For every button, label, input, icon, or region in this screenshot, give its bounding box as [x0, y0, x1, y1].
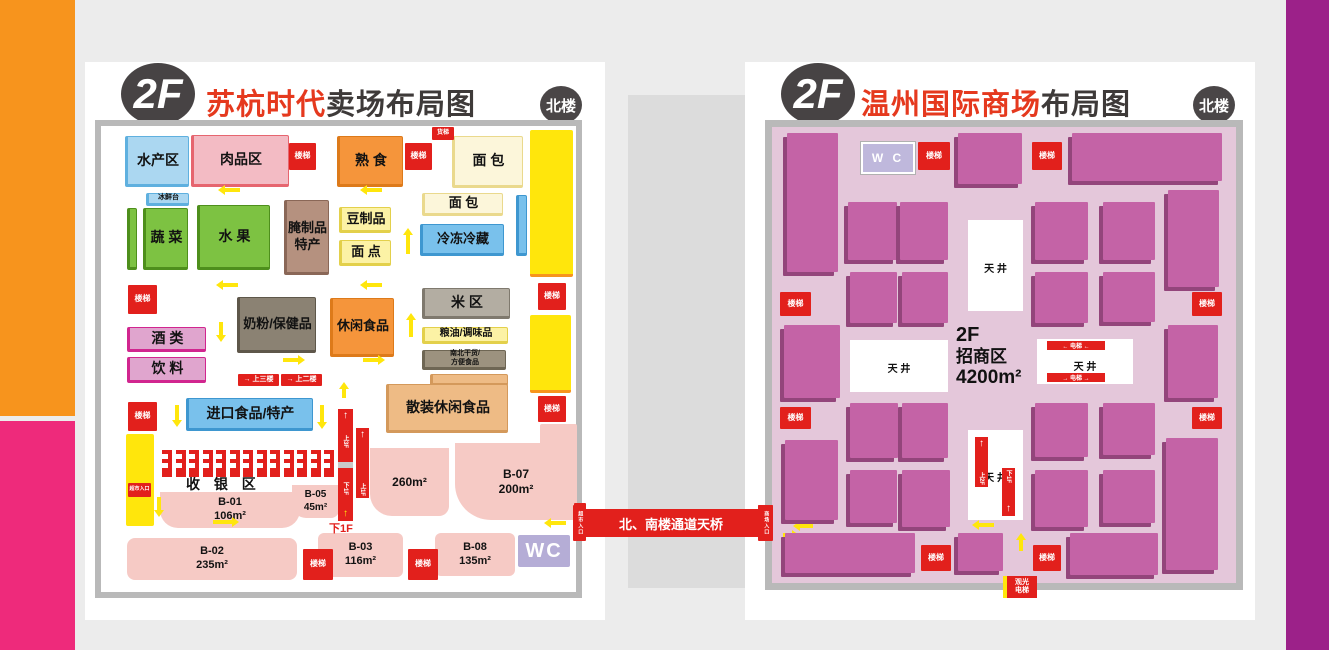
stairs-badge: 楼梯: [303, 549, 333, 580]
atrium-label: 天 井: [1037, 358, 1133, 373]
escalator-main: ↑上3F下1F↑: [338, 409, 353, 521]
stairs-badge: 楼梯: [128, 285, 157, 314]
flow-arrow-part: [339, 382, 349, 389]
shop-block: [1103, 403, 1155, 455]
flow-arrow-icon: [544, 518, 566, 528]
zone-dry-goods: 南北干货/ 方便食品: [422, 350, 506, 370]
flow-arrow-icon: [363, 355, 385, 365]
shop-block: [1035, 272, 1088, 323]
shop-block: [1103, 272, 1155, 322]
elevator-badge: → 电梯 →: [1047, 373, 1105, 382]
bridge-right-tab-label: 商场入口: [763, 511, 769, 535]
shop-block: [785, 440, 838, 520]
right-title-red: 温州国际商场: [861, 89, 1041, 121]
checkout-register-icon: [284, 450, 294, 477]
flow-arrow-icon: [1016, 533, 1026, 551]
checkout-register-icon: [176, 450, 186, 477]
flow-arrow-part: [544, 518, 551, 528]
flow-arrow-part: [216, 335, 226, 342]
up-2f-badge: → 上二楼: [281, 374, 322, 386]
left-floor-circle: 2F: [121, 63, 195, 125]
flow-arrow-icon: [360, 185, 382, 195]
escalator-direction-label: 下1F: [341, 482, 350, 495]
left-title-red: 苏杭时代: [206, 89, 326, 121]
shop-block: [787, 133, 838, 272]
escalator-strip: 下1F↑: [1002, 468, 1015, 516]
down-1f-label: 下1F: [329, 520, 353, 536]
shop-block: [1035, 202, 1088, 260]
zone-frozen: 冷冻冷藏: [420, 224, 504, 256]
escalator-side: ↑上1F: [356, 428, 369, 498]
stairs-badge: 楼梯: [780, 292, 811, 316]
left-north-badge: 北楼: [540, 86, 582, 124]
flow-arrow-part: [1019, 540, 1022, 551]
elevator-badge: ← 电梯 ←: [1047, 341, 1105, 350]
flow-arrow-part: [979, 523, 994, 526]
leasing-name: 招商区: [956, 347, 1022, 367]
flow-arrow-icon: [218, 185, 240, 195]
zone-grain-oil: 粮油/调味品: [422, 327, 508, 344]
flow-arrow-part: [154, 510, 164, 517]
stairs-badge: 楼梯: [128, 402, 157, 431]
shop-block: [850, 470, 897, 523]
flow-arrow-icon: [283, 355, 305, 365]
up-3f-badge: → 上三楼: [238, 374, 279, 386]
shop-block: [1035, 403, 1088, 457]
flow-arrow-part: [172, 420, 182, 427]
atrium-top: 天 井: [968, 220, 1023, 311]
flow-arrow-part: [219, 322, 222, 335]
flow-arrow-icon: [972, 520, 994, 530]
decor-orange-bar: [0, 0, 75, 416]
atrium-elevators: 天 井← 电梯 ←→ 电梯 →: [1037, 339, 1133, 384]
escalator-arrow-icon: ↑: [360, 430, 365, 440]
bridge-right-tab: 商场入口: [758, 505, 773, 541]
right-north-badge: 北楼: [1193, 86, 1235, 124]
stairs-badge: 楼梯: [538, 283, 566, 310]
zone-bread-2: 面 包: [422, 193, 503, 216]
checkout-register-icon: [189, 450, 199, 477]
shop-block: [902, 470, 950, 527]
checkout-register-icon: [230, 450, 240, 477]
zone-drinks: 饮 料: [127, 357, 206, 383]
checkout-register-icon: [162, 450, 172, 477]
zone-rice: 米 区: [422, 288, 510, 319]
flow-arrow-part: [342, 389, 345, 398]
checkout-register-icon: [324, 450, 334, 477]
flow-arrow-icon: [213, 517, 239, 527]
flow-arrow-icon: [403, 228, 413, 254]
flow-arrow-part: [225, 188, 240, 191]
zone-wc: WC: [518, 535, 570, 567]
checkout-register-icon: [270, 450, 280, 477]
atrium-left: 天 井: [850, 340, 948, 392]
stairs-badge: 楼梯: [918, 142, 950, 170]
left-floor-label: 2F: [133, 70, 182, 118]
flow-arrow-part: [360, 185, 367, 195]
right-floor-circle: 2F: [781, 63, 855, 125]
zone-ice-counter: 冰鲜台: [146, 193, 189, 206]
flow-arrow-part: [800, 524, 813, 527]
escalator-direction-label: 上3F: [341, 435, 350, 448]
escalator-direction-label: 上1F: [358, 483, 367, 496]
checkout-register-icon: [243, 450, 253, 477]
shop-block: [848, 202, 897, 260]
shop-block: [902, 272, 948, 323]
bridge-banner: 北、南楼通道天桥: [576, 509, 766, 537]
decor-purple-bar: [1286, 0, 1329, 650]
flow-arrow-icon: [406, 313, 416, 337]
escalator-arrow-icon: ↑: [979, 439, 984, 449]
flow-arrow-part: [216, 280, 223, 290]
stairs-badge: 楼梯: [405, 143, 432, 170]
flow-arrow-part: [320, 405, 323, 422]
checkout-register-icon: [297, 450, 307, 477]
green-strip: [127, 208, 137, 270]
bridge-left-tab-label: 超市入口: [577, 511, 583, 535]
escalator-direction-label: 上2F: [977, 472, 986, 485]
flow-arrow-part: [317, 422, 327, 429]
zone-wine: 酒 类: [127, 327, 206, 352]
stairs-badge: 楼梯: [408, 549, 438, 580]
flow-arrow-icon: [360, 280, 382, 290]
zone-vegetables: 蔬 菜: [143, 208, 188, 270]
escalator-arrow-icon: ↑: [1006, 504, 1011, 514]
blue-strip: [516, 195, 527, 256]
flow-arrow-part: [175, 405, 178, 420]
stairs-badge: 楼梯: [921, 545, 951, 571]
escalator-direction-label: 下1F: [1004, 470, 1013, 483]
cashier-area-label: 收 银 区: [186, 474, 261, 494]
leasing-size: 4200m²: [956, 367, 1022, 389]
shop-block: [958, 133, 1022, 184]
flow-arrow-icon: [339, 382, 349, 398]
poster-stage: 2F 苏杭时代卖场布局图 北楼 2F 温州国际商场布局图 北楼 2F 招商区 4…: [0, 0, 1329, 650]
right-floor-label: 2F: [793, 70, 842, 118]
bridge-label: 北、南楼通道天桥: [619, 514, 723, 533]
flow-arrow-icon: [154, 497, 164, 517]
atrium-label: 天 井: [850, 360, 948, 375]
stairs-badge: 楼梯: [1192, 407, 1222, 429]
zone-meat: 肉品区: [191, 135, 289, 187]
shop-block: [1070, 533, 1158, 575]
shop-block: [958, 533, 1003, 571]
zone-260: 260m²: [370, 448, 449, 516]
shop-block: [1166, 438, 1218, 570]
flow-arrow-part: [213, 520, 232, 523]
right-title-dark: 布局图: [1041, 89, 1131, 121]
leasing-floor: 2F: [956, 324, 1022, 347]
yellow-block: [126, 434, 154, 526]
stairs-badge: 楼梯: [1032, 142, 1062, 170]
shop-block: [1103, 470, 1155, 523]
flow-arrow-icon: [216, 322, 226, 342]
shop-block: [785, 533, 915, 573]
escalator-gap: [338, 462, 353, 468]
shop-block: [902, 403, 948, 458]
stairs-badge: 楼梯: [1192, 292, 1222, 316]
stairs-badge: 楼梯: [780, 407, 811, 429]
shop-block: [1168, 325, 1218, 398]
zone-milk-health: 奶粉/保健品: [237, 297, 316, 353]
flow-arrow-part: [367, 283, 382, 286]
escalator-strip: ↑上2F: [975, 437, 988, 487]
flow-arrow-part: [972, 520, 979, 530]
flow-arrow-part: [409, 320, 412, 337]
left-title-dark: 卖场布局图: [326, 89, 476, 121]
shop-block: [850, 272, 897, 323]
flow-arrow-icon: [172, 405, 182, 427]
checkout-register-icon: [257, 450, 267, 477]
shop-block: [784, 325, 840, 398]
right-wc-badge: W C: [861, 142, 915, 174]
zone-cooked-food: 熟 食: [337, 136, 403, 187]
yellow-strip-2: [530, 315, 571, 393]
zone-b02: B-02 235m²: [127, 538, 297, 580]
zone-tofu: 豆制品: [339, 207, 391, 233]
stairs-badge: 楼梯: [1033, 545, 1061, 571]
shop-block: [900, 202, 948, 260]
zone-pickled: 腌制品 特产: [284, 200, 329, 275]
zone-b07: B-07 200m²: [455, 443, 577, 520]
left-north-label: 北楼: [546, 95, 576, 116]
flow-arrow-part: [232, 517, 239, 527]
flow-arrow-part: [360, 280, 367, 290]
flow-arrow-part: [363, 358, 378, 361]
zone-snack-food: 休闲食品: [330, 298, 394, 357]
flow-arrow-part: [406, 235, 409, 254]
zone-imported-food: 进口食品/特产: [186, 398, 313, 431]
left-title: 苏杭时代卖场布局图: [206, 81, 476, 123]
shop-block: [1103, 202, 1155, 260]
flow-arrow-part: [1016, 533, 1026, 540]
flow-arrow-part: [157, 497, 160, 510]
flow-arrow-part: [406, 313, 416, 320]
zone-bulk-snacks: 散装休闲食品: [386, 384, 508, 433]
sightseeing-elevator-badge: 观光 电梯: [1003, 576, 1037, 598]
freight-elevator-badge: 货梯: [432, 127, 454, 140]
zone-fruits: 水 果: [197, 205, 270, 270]
flow-arrow-part: [223, 283, 238, 286]
checkout-register-icon: [216, 450, 226, 477]
sightseeing-elevator-label: 观光 电梯: [1015, 579, 1029, 596]
flow-arrow-part: [403, 228, 413, 235]
bridge-left-tab: 超市入口: [573, 505, 586, 541]
atrium-label: 天 井: [968, 260, 1023, 275]
zone-b05: B-05 45m²: [292, 485, 339, 518]
flow-arrow-part: [218, 185, 225, 195]
leasing-area-text: 2F 招商区 4200m²: [956, 324, 1022, 388]
flow-arrow-part: [367, 188, 382, 191]
flow-arrow-part: [298, 355, 305, 365]
flow-arrow-part: [283, 358, 298, 361]
zone-pastry: 面 点: [339, 240, 391, 266]
zone-b08: B-08 135m²: [435, 533, 515, 576]
escalator-arrow-icon: ↑: [343, 509, 348, 519]
flow-arrow-icon: [317, 405, 327, 429]
shop-block: [850, 403, 898, 458]
checkout-register-icon: [311, 450, 321, 477]
shop-block: [1072, 133, 1222, 181]
flow-arrow-icon: [216, 280, 238, 290]
stairs-badge: 楼梯: [289, 143, 316, 170]
right-title: 温州国际商场布局图: [861, 81, 1131, 123]
shop-block: [1168, 190, 1219, 287]
checkout-register-icon: [203, 450, 213, 477]
right-wc-label: W C: [872, 151, 904, 165]
escalator-arrow-icon: ↑: [343, 411, 348, 421]
decor-pink-bar: [0, 421, 75, 650]
shop-block: [1035, 470, 1088, 527]
supermarket-entrance-badge: 超市入口: [128, 483, 151, 497]
yellow-strip-1: [530, 130, 573, 277]
stairs-badge: 楼梯: [538, 396, 566, 422]
zone-seafood: 水产区: [125, 136, 189, 187]
right-north-label: 北楼: [1199, 95, 1229, 116]
flow-arrow-part: [378, 355, 385, 365]
flow-arrow-part: [551, 521, 566, 524]
zone-bread-1: 面 包: [452, 136, 523, 188]
